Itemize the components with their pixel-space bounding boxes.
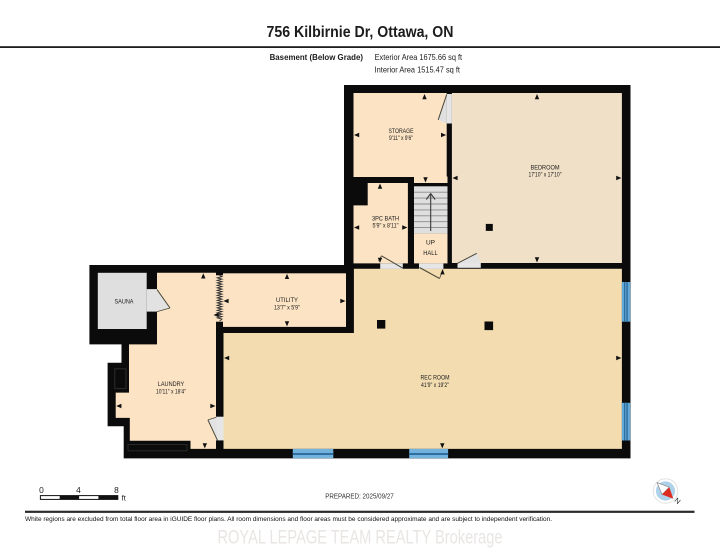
svg-text:ROYAL LEPAGE TEAM REALTY Brok: ROYAL LEPAGE TEAM REALTY Brokerage: [218, 528, 503, 549]
svg-text:3PC BATH: 3PC BATH: [372, 215, 399, 222]
svg-text:41'9" x 19'2": 41'9" x 19'2": [421, 383, 449, 389]
svg-text:0: 0: [39, 485, 44, 495]
svg-text:Basement (Below Grade): Basement (Below Grade): [270, 53, 364, 62]
svg-text:9'11" x 9'6": 9'11" x 9'6": [389, 136, 413, 142]
svg-text:UP: UP: [426, 240, 435, 247]
svg-text:Exterior Area 1675.66 sq ft: Exterior Area 1675.66 sq ft: [375, 53, 463, 62]
svg-text:PREPARED: 2025/09/27: PREPARED: 2025/09/27: [325, 492, 394, 501]
svg-text:13'7" x 5'9": 13'7" x 5'9": [274, 306, 300, 312]
svg-text:Interior Area 1515.47 sq ft: Interior Area 1515.47 sq ft: [375, 66, 461, 75]
svg-text:White regions are excluded fro: White regions are excluded from total fl…: [25, 517, 552, 523]
svg-text:SAUNA: SAUNA: [115, 299, 135, 306]
svg-text:BEDROOM: BEDROOM: [531, 164, 560, 171]
svg-text:REC ROOM: REC ROOM: [421, 374, 450, 381]
svg-text:STORAGE: STORAGE: [389, 128, 414, 135]
svg-text:5'9" x 8'11": 5'9" x 8'11": [373, 224, 399, 230]
svg-text:LAUNDRY: LAUNDRY: [158, 381, 185, 388]
svg-text:756 Kilbirnie Dr, Ottawa, ON: 756 Kilbirnie Dr, Ottawa, ON: [267, 24, 454, 41]
svg-text:4: 4: [76, 485, 81, 495]
svg-text:17'10" x 17'10": 17'10" x 17'10": [529, 173, 562, 179]
svg-text:HALL: HALL: [423, 250, 438, 257]
svg-text:UTILITY: UTILITY: [276, 297, 299, 304]
svg-text:10'11" x 18'4": 10'11" x 18'4": [156, 390, 186, 396]
svg-text:8: 8: [114, 485, 119, 495]
